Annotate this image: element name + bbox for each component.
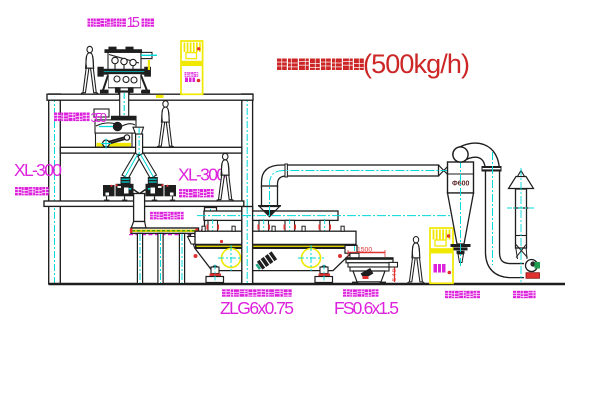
svg-text:540: 540 (392, 269, 398, 281)
svg-text:(500kg/h): (500kg/h) (363, 49, 470, 79)
svg-text:1.5: 1.5 (127, 15, 141, 31)
svg-text:ZLG6x0.75: ZLG6x0.75 (220, 298, 294, 318)
svg-text:XL-300: XL-300 (14, 160, 62, 180)
svg-text:350: 350 (91, 110, 108, 125)
svg-text:1500: 1500 (357, 247, 372, 254)
svg-text:XL-300: XL-300 (178, 165, 226, 185)
svg-text:FS0.6x1.5: FS0.6x1.5 (334, 298, 399, 318)
